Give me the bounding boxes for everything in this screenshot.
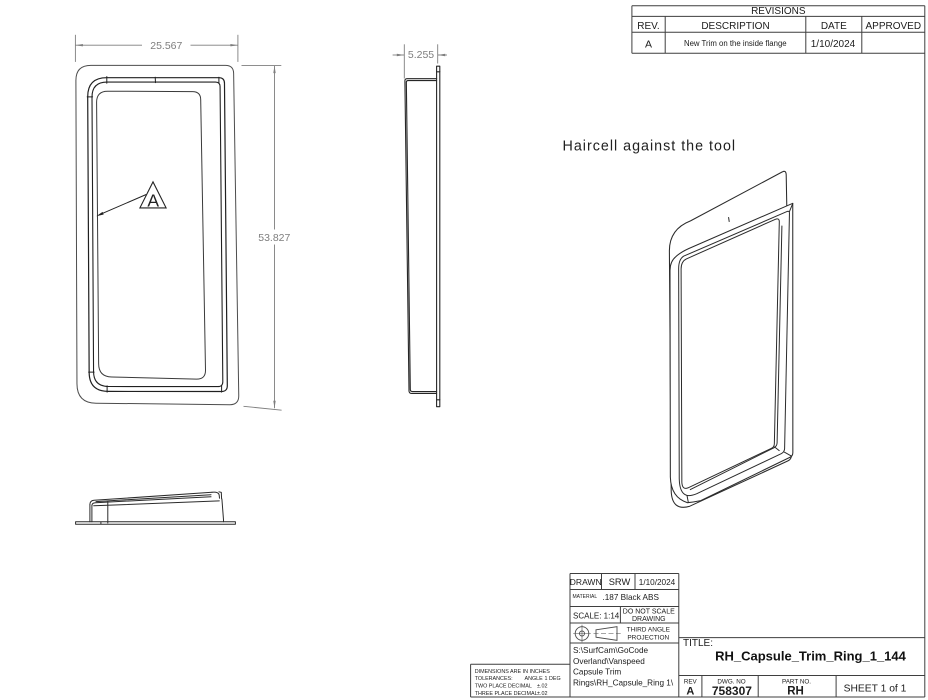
svg-text:A: A xyxy=(686,686,694,698)
svg-text:THIRD ANGLE: THIRD ANGLE xyxy=(627,627,671,634)
svg-text:TWO PLACE DECIMAL: TWO PLACE DECIMAL xyxy=(475,683,532,689)
svg-text:DRAWN: DRAWN xyxy=(570,577,602,587)
svg-text:Overland\Vanspeed: Overland\Vanspeed xyxy=(573,657,645,666)
svg-text:758307: 758307 xyxy=(712,684,752,698)
svg-text:Rings\RH_Capsule_Ring 1\: Rings\RH_Capsule_Ring 1\ xyxy=(573,678,674,687)
svg-text:5.255: 5.255 xyxy=(408,49,434,61)
svg-text:1/10/2024: 1/10/2024 xyxy=(811,39,856,50)
svg-text:A: A xyxy=(645,38,652,50)
svg-text:SCALE: 1:14: SCALE: 1:14 xyxy=(573,611,620,620)
svg-text:DATE: DATE xyxy=(821,21,847,32)
svg-text:SHEET 1 of 1: SHEET 1 of 1 xyxy=(844,684,907,695)
svg-text:Capsule Trim: Capsule Trim xyxy=(573,668,621,677)
svg-text:±.02: ±.02 xyxy=(537,683,547,689)
svg-text:S:\SurfCam\GoCode: S:\SurfCam\GoCode xyxy=(573,646,649,655)
svg-text:REV: REV xyxy=(684,678,698,685)
svg-text:53.827: 53.827 xyxy=(258,232,290,244)
svg-text:DRAWING: DRAWING xyxy=(632,616,666,623)
svg-text:±.02: ±.02 xyxy=(537,691,547,697)
svg-text:A: A xyxy=(147,190,159,210)
svg-text:RH: RH xyxy=(787,686,804,698)
svg-text:1 DEG: 1 DEG xyxy=(545,676,561,682)
svg-text:New Trim on the inside flange: New Trim on the inside flange xyxy=(684,39,787,48)
svg-text:25.567: 25.567 xyxy=(150,40,182,52)
svg-text:TOLERANCES:: TOLERANCES: xyxy=(475,676,513,682)
svg-text:REVISIONS: REVISIONS xyxy=(751,6,806,17)
svg-text:THREE PLACE DECIMAL: THREE PLACE DECIMAL xyxy=(475,691,538,697)
svg-text:DESCRIPTION: DESCRIPTION xyxy=(701,21,769,32)
svg-text:1/10/2024: 1/10/2024 xyxy=(639,578,676,587)
svg-text:RH_Capsule_Trim_Ring_1_144: RH_Capsule_Trim_Ring_1_144 xyxy=(715,648,907,663)
svg-text:PROJECTION: PROJECTION xyxy=(627,635,669,642)
svg-text:TITLE:: TITLE: xyxy=(683,638,713,649)
svg-text:Haircell against the tool: Haircell against the tool xyxy=(563,139,737,155)
svg-text:ANGLE: ANGLE xyxy=(525,676,544,682)
svg-text:REV.: REV. xyxy=(637,21,659,32)
svg-text:APPROVED: APPROVED xyxy=(866,21,922,32)
svg-text:MATERIAL: MATERIAL xyxy=(573,594,598,600)
svg-text:SRW: SRW xyxy=(609,577,631,587)
svg-text:PART NO.: PART NO. xyxy=(782,678,811,685)
svg-text:.187 Black ABS: .187 Black ABS xyxy=(602,593,659,602)
svg-text:DIMENSIONS ARE IN INCHES: DIMENSIONS ARE IN INCHES xyxy=(475,669,551,675)
svg-text:DO NOT SCALE: DO NOT SCALE xyxy=(623,609,675,616)
